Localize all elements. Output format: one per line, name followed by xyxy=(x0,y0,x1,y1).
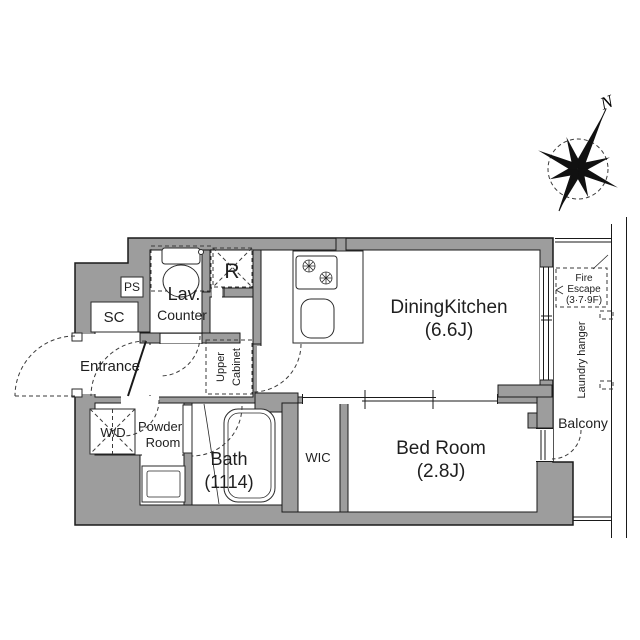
dining-kitchen-size: (6.6J) xyxy=(425,320,474,341)
sc-label: SC xyxy=(104,309,125,326)
open-powder-vanity xyxy=(142,452,182,458)
entrance-label: Entrance xyxy=(80,358,140,375)
entrance-door-swing xyxy=(15,336,75,396)
fire-escape-leader-line xyxy=(593,255,608,269)
upper-cabinet-label-2: Cabinet xyxy=(231,348,243,386)
compass-rose: N xyxy=(536,91,619,213)
dining-kitchen-label: DiningKitchen xyxy=(390,297,507,318)
stove xyxy=(296,256,337,289)
bed-window-opening xyxy=(302,394,498,404)
powder-door-opening xyxy=(121,396,159,404)
bed-room-label: Bed Room xyxy=(396,438,486,459)
wall-lav-r-divider xyxy=(202,250,210,292)
bed-room-size: (2.8J) xyxy=(417,461,466,482)
dk-window-opening xyxy=(540,267,553,380)
wall-bed-top-right xyxy=(498,385,552,397)
open-entrance-hall xyxy=(147,345,154,395)
toilet-handle xyxy=(199,250,204,255)
wall-bed-right-step xyxy=(528,413,537,428)
open-hall-dk xyxy=(257,346,266,395)
balcony-door-swing xyxy=(552,430,581,459)
bath-size: (1114) xyxy=(204,472,253,492)
wall-bath-wic xyxy=(282,403,298,512)
floor-plan-canvas: N PS SC Lav. Counter R DiningKitchen (6.… xyxy=(0,0,640,640)
lav-door-opening xyxy=(160,334,202,343)
laundry-hanger-label: Laundry hanger xyxy=(576,321,588,398)
fire-escape-label-2: Escape xyxy=(567,284,601,295)
lav-label: Lav. xyxy=(168,284,201,304)
upper-cabinet-label-1: Upper xyxy=(215,352,227,382)
fire-escape-label-1: Fire xyxy=(575,273,593,284)
balcony-label: Balcony xyxy=(558,415,608,431)
ps-label: PS xyxy=(124,280,140,294)
fire-escape-label-3: (3·7·9F) xyxy=(566,295,602,306)
counter-label: Counter xyxy=(157,307,207,323)
wic-label: WIC xyxy=(305,450,330,465)
kitchen-sink xyxy=(301,299,334,338)
open-r-niche xyxy=(212,286,222,299)
wall-wic-bed xyxy=(340,403,348,512)
burner-icon xyxy=(320,272,332,284)
wall-bed-right xyxy=(537,397,553,428)
wall-r-right xyxy=(253,250,261,344)
powder-room-label-2: Room xyxy=(146,435,181,450)
floor-plan-page: N PS SC Lav. Counter R DiningKitchen (6.… xyxy=(0,0,640,640)
powder-room-label-1: Powder xyxy=(138,419,183,434)
entrance-door-jamb-top xyxy=(72,333,82,341)
washer-dryer-label: W/D xyxy=(100,425,125,440)
burner-icon xyxy=(303,260,315,272)
bath-label: Bath xyxy=(210,449,247,469)
refrigerator-label: R xyxy=(224,260,239,283)
wall-lav-bottom-right xyxy=(202,333,240,343)
compass-north-label: N xyxy=(597,91,617,115)
fire-escape-arrow-icon xyxy=(556,286,563,294)
toilet-tank xyxy=(162,248,200,264)
bath-door-panel xyxy=(183,405,192,453)
